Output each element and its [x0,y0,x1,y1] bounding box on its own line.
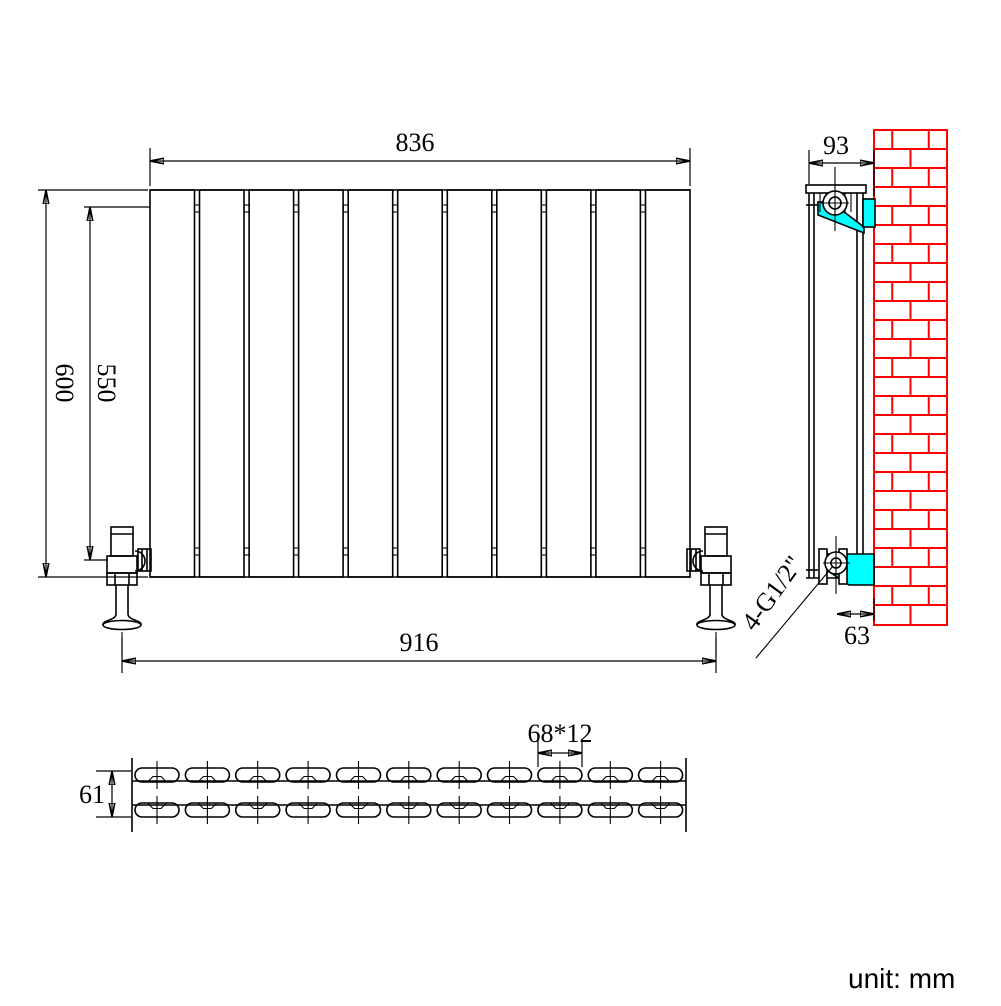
top-view: 61 68*12 [79,719,686,832]
top-width-dimension: 836 [150,128,690,186]
wall-bracket-bottom [819,536,874,594]
depth-dimension: 93 [809,131,874,196]
valve-span-dimension: 916 [122,628,716,673]
dim-label-height-overall: 600 [50,364,79,403]
unit-note: unit: mm [848,963,955,994]
connection-thread-label: 4-G1/2" [736,550,809,635]
radiator-panels [150,190,690,577]
wall-bracket-top [818,167,875,233]
valve-right [687,527,735,657]
dim-label-width-top: 836 [396,128,435,157]
top-view-sections [135,761,683,824]
radiator-panel [596,190,641,577]
dim-label-height-connection: 550 [92,364,121,403]
radiator-panel [546,190,591,577]
radiator-panel [497,190,542,577]
radiator-panel [150,190,195,577]
connection-height-dimension: 550 [84,207,150,560]
radiator-panel [249,190,294,577]
radiator-panel [646,190,691,577]
dim-label-top-depth: 61 [79,780,105,809]
dim-label-depth-top: 93 [823,131,849,160]
side-view: 93 63 4-G1/2" [736,130,947,658]
dim-label-valve-span: 916 [400,628,439,657]
radiator-profile [806,185,866,578]
section-pitch-dimension: 68*12 [528,719,593,767]
dim-label-wall-offset: 63 [844,621,870,650]
radiator-panel [398,190,443,577]
valve-left [103,527,151,657]
radiator-panel [200,190,245,577]
radiator-panel [299,190,344,577]
top-view-depth-dimension: 61 [79,771,131,817]
brick-wall [874,130,947,625]
front-view: 836 600 550 916 [38,128,735,673]
wall-offset-dimension: 63 [837,598,874,650]
drawing-canvas: 836 600 550 916 [0,0,1001,1001]
radiator-panel [348,190,393,577]
radiator-panel [447,190,492,577]
radiator-technical-drawing: 836 600 550 916 [0,0,1001,1001]
dim-label-section-pitch: 68*12 [528,719,593,748]
